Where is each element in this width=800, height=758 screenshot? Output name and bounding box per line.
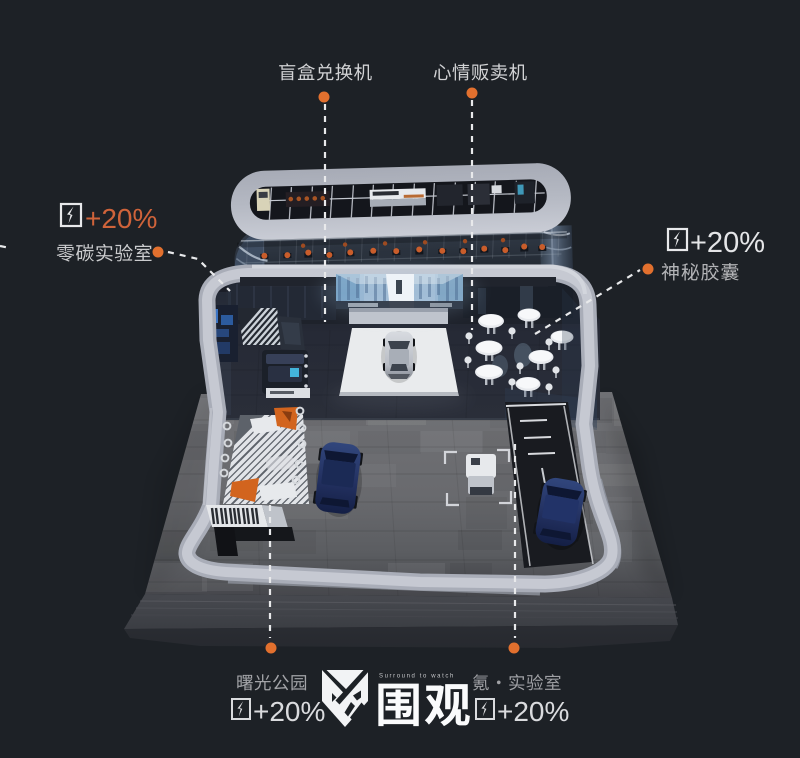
svg-text:+20%: +20% [497, 696, 569, 727]
svg-text:+20%: +20% [85, 203, 157, 234]
svg-text:+20%: +20% [253, 696, 325, 727]
svg-text:+20%: +20% [690, 227, 765, 259]
svg-text:Surround to watch: Surround to watch [379, 674, 455, 680]
